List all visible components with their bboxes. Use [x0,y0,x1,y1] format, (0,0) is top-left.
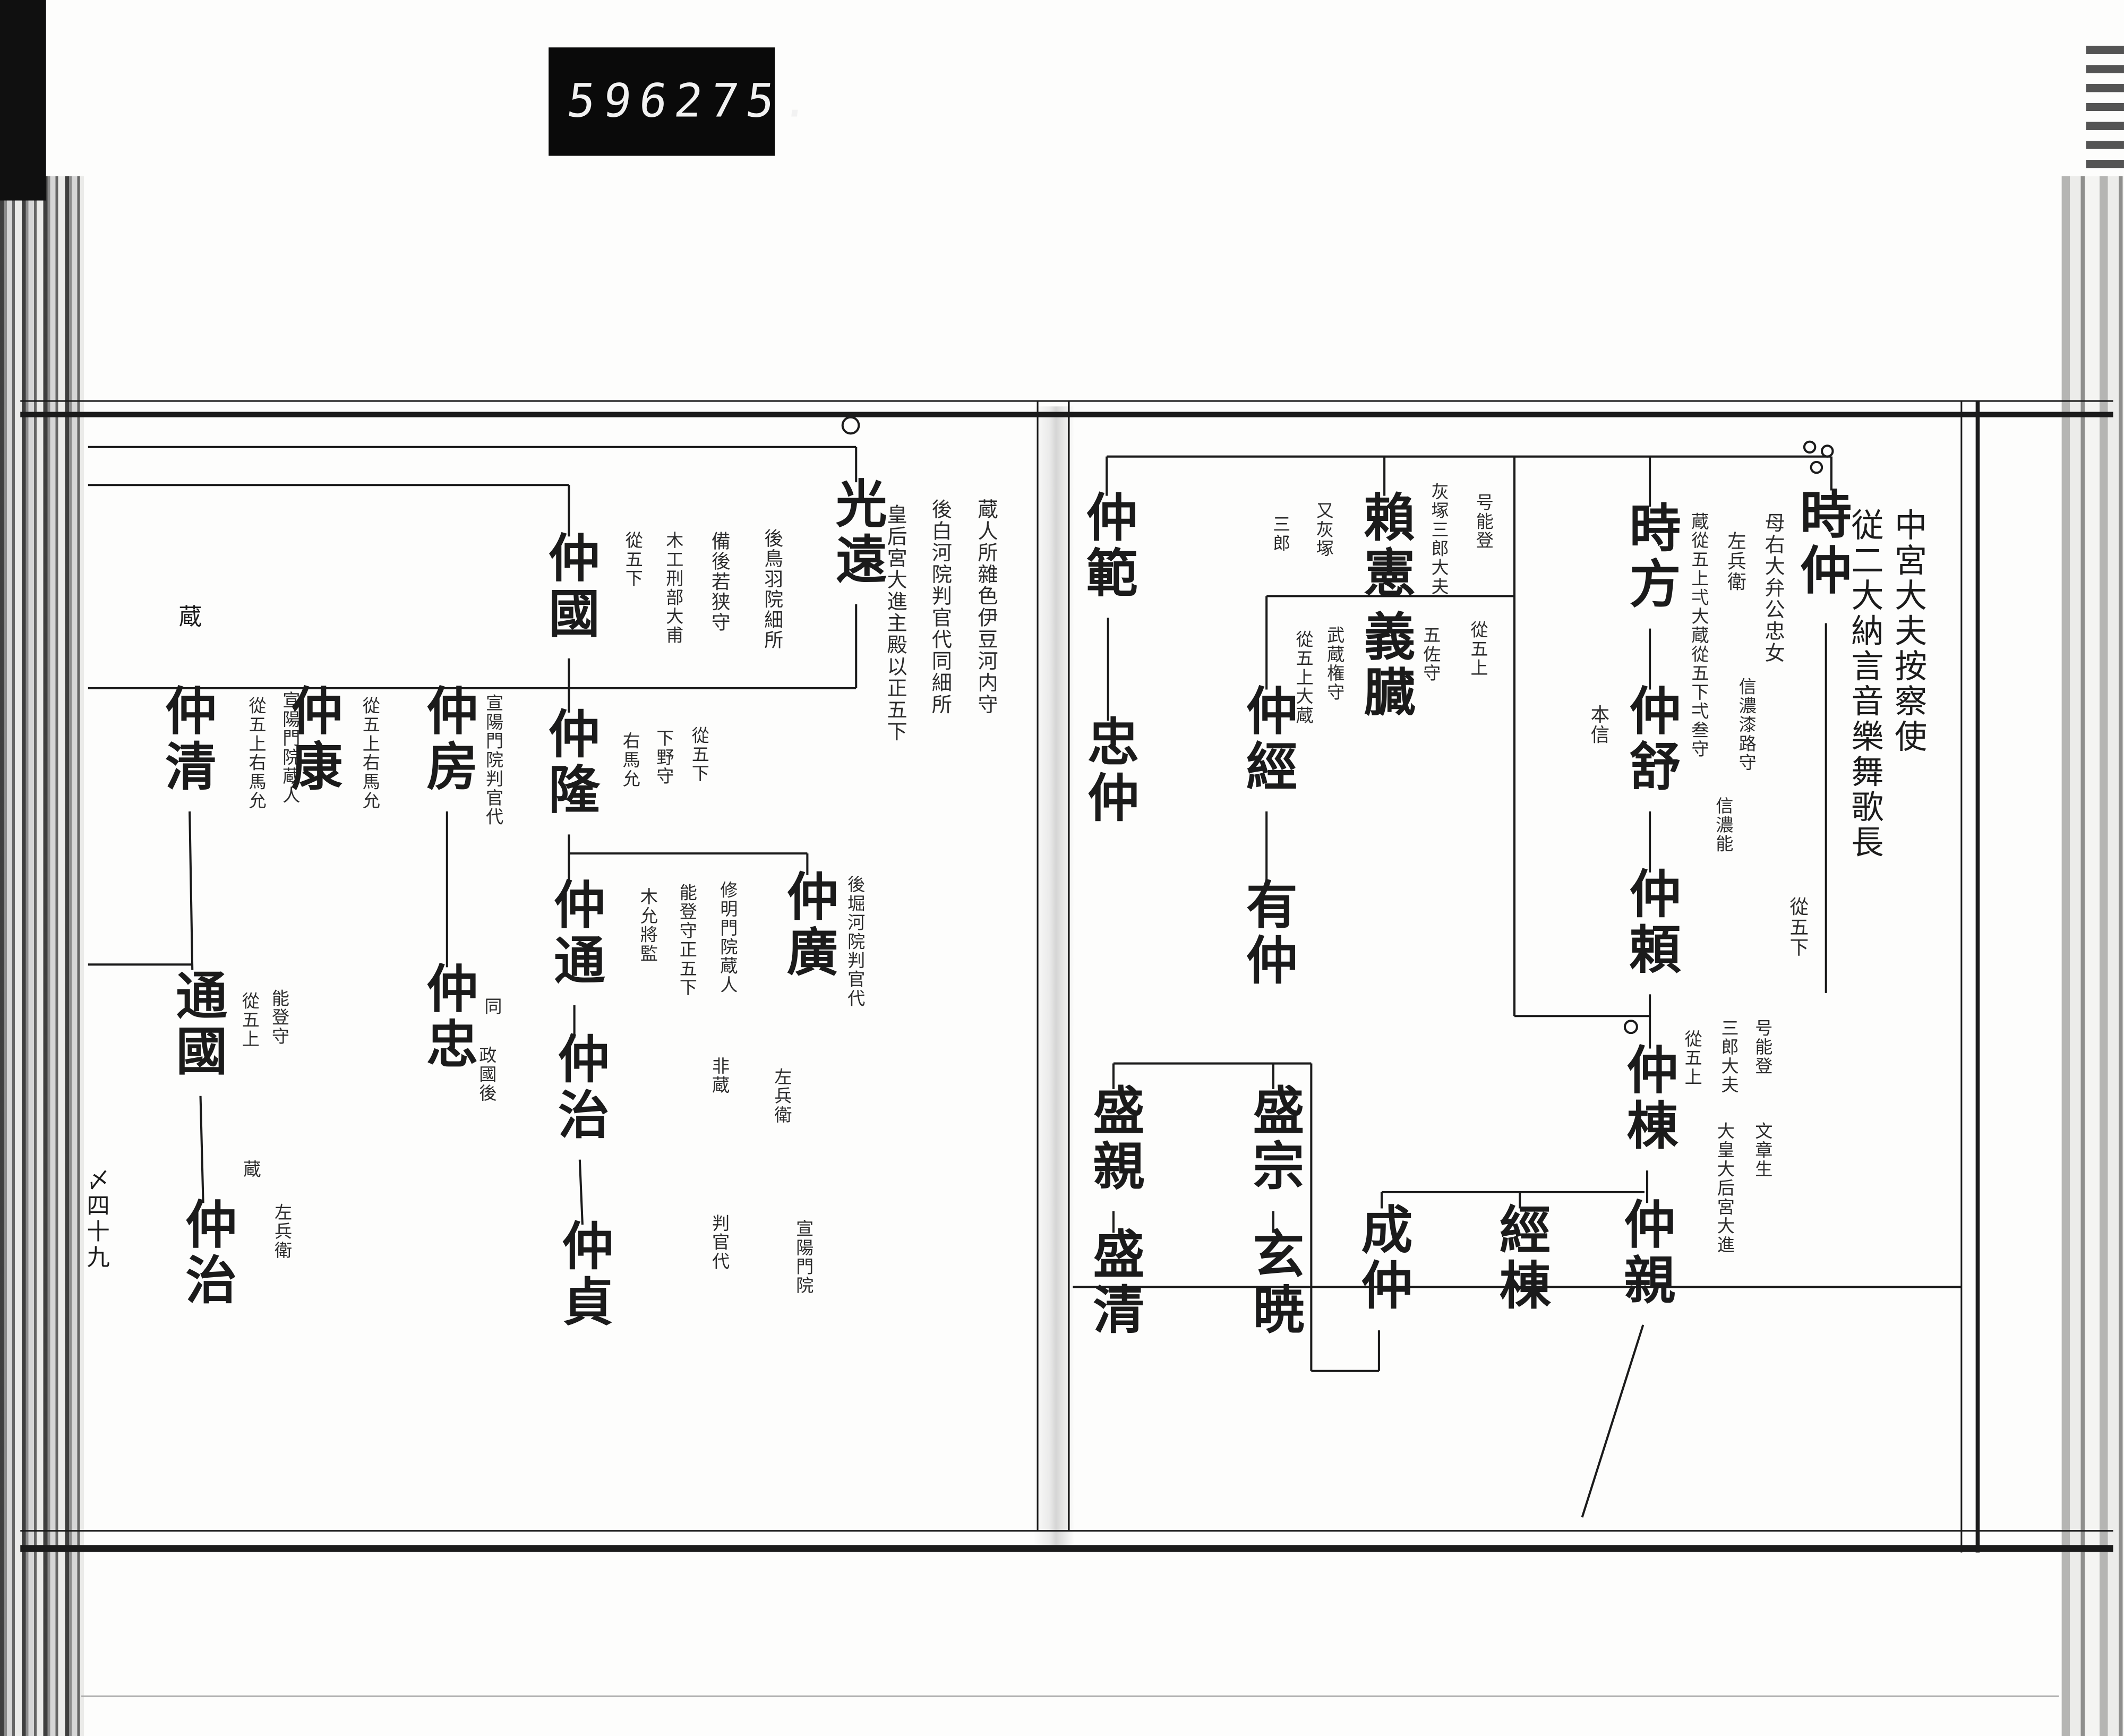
genealogy-name-column: 仲親 [1614,1198,1675,1309]
genealogy-name-column: 盛親 [1083,1084,1144,1195]
genealogy-name-column: 仲舒 [1620,684,1680,795]
genealogy-name-column: 盛清 [1083,1227,1144,1338]
genealogy-annotation-column: 大皇大后宮大進 [1712,1122,1733,1254]
genealogy-annotation-column: 修明門院蔵人 [716,880,736,994]
genealogy-name-column: 仲房 [417,684,477,795]
genealogy-annotation-column: 蔵 [239,1160,260,1179]
genealogy-annotation-column: 蔵從五上弌大蔵從五下弌叁守 [1687,512,1708,758]
genealogy-name-column: 經棟 [1489,1203,1550,1314]
genealogy-annotation-column: 三郎 [1269,515,1289,552]
genealogy-annotation-column: 木工刑部大甫 [662,531,682,645]
genealogy-name-column: 仲國 [538,531,599,642]
genealogy-name-column: 仲經 [1236,684,1297,795]
genealogy-name-column: 玄暁 [1243,1227,1304,1338]
genealogy-name-column: 時方 [1620,501,1680,612]
genealogy-name-column: 成仲 [1351,1203,1412,1314]
genealogy-annotation-column: 蔵人所雜色伊豆河内守 [974,499,998,715]
genealogy-annotation-column: 本信 [1587,705,1609,746]
genealogy-name-column: 賴憲 [1354,490,1415,601]
genealogy-annotation-column: 皇后宮大進主殿以正五下 [884,504,907,742]
genealogy-annotation-column: 左兵衛 [770,1067,791,1124]
genealogy-annotation-column: 信濃能 [1711,797,1732,853]
connector-line [580,1160,583,1225]
genealogy-name-column: 仲治 [548,1032,609,1143]
genealogy-name-column: 仲棟 [1617,1043,1677,1154]
genealogy-annotation-column: 左兵衛 [270,1203,291,1260]
genealogy-label-column: 蔵 [173,604,200,630]
genealogy-annotation-column: 信濃漆路守 [1734,678,1755,773]
genealogy-margin-column: 〆四十九 [81,1168,108,1271]
genealogy-annotation-column: 後白河院判官代同細所 [928,499,952,715]
genealogy-annotation-column: 判官代 [707,1214,728,1271]
genealogy-annotation-column: 左兵衛 [1724,531,1746,592]
connector-line [1582,1325,1643,1517]
genealogy-name-column: 仲通 [544,878,604,989]
genealogy-annotation-column: 從五上右馬允 [358,696,379,810]
book-spread: 596 275. 中宮大夫按察使従二大納言音樂舞歌長時仲時方仲舒仲頼仲棟仲親賴憲… [0,0,2124,1736]
genealogy-annotation-column: 武蔵権守 [1323,626,1343,702]
genealogy-name-column: 光遠 [826,477,886,588]
genealogy-annotation-column: 從五上 [237,991,258,1048]
genealogy-annotation-column: 能登守 [267,989,288,1046]
genealogy-name-column: 有仲 [1236,878,1297,989]
genealogy-annotation-column: 号能登 [1471,493,1492,550]
circle-marker [843,417,859,434]
genealogy-name-column: 通國 [166,969,227,1080]
connector-line [190,811,192,970]
genealogy-name-column: 仲隆 [538,707,599,818]
genealogy-annotation-column: 從五上 [1680,1030,1701,1087]
genealogy-name-column: 仲範 [1076,490,1137,601]
genealogy-annotation-column: 宣陽門院蔵人 [278,691,299,805]
genealogy-annotation-column: 後鳥羽院細所 [761,528,783,651]
genealogy-annotation-column: 後堀河院判官代 [843,875,864,1008]
genealogy-annotation-column: 五佐守 [1419,626,1440,683]
genealogy-annotation-column: 下野守 [652,729,673,785]
genealogy-annotation-column: 從五上 [1466,620,1487,677]
genealogy-annotation-column: 宣陽門院判官代 [481,694,502,826]
genealogy-annotation-column: 從五上大蔵 [1291,630,1312,725]
genealogy-name-column: 時仲 [1790,488,1851,598]
connector-line [201,1096,203,1203]
genealogy-annotation-column: 文章生 [1751,1122,1771,1178]
genealogy-annotation-column: 從五下 [687,726,708,783]
genealogy-annotation-column: 木允將監 [636,887,656,963]
genealogy-annotation-column: 灰塚三郎大夫 [1427,482,1448,596]
genealogy-name-column: 仲清 [155,684,216,795]
genealogy-annotation-column: 政國後 [475,1046,495,1102]
genealogy-annotation-column: 又灰塚 [1312,501,1332,558]
genealogy-name-column: 仲頼 [1620,867,1680,978]
genealogy-name-column: 仲治 [176,1198,236,1309]
circle-marker [1811,462,1822,473]
circle-marker [1804,442,1815,452]
genealogy-annotation-column: 備後若狭守 [708,531,731,632]
genealogy-annotation-column: 從五上右馬允 [244,696,265,810]
genealogy-name-column: 仲廣 [777,870,837,981]
genealogy-name-column: 義臓 [1354,610,1415,721]
genealogy-name-column: 仲貞 [552,1219,613,1330]
genealogy-annotation-column: 三郎大夫 [1717,1019,1737,1094]
genealogy-connector-layer [0,0,2124,1736]
genealogy-annotation-column: 宣陽門院 [792,1219,812,1295]
genealogy-annotation-column: 非蔵 [707,1057,728,1094]
genealogy-name-column: 仲忠 [417,962,477,1073]
genealogy-annotation-column: 母右大弁公忠女 [1761,512,1785,664]
genealogy-annotation-column: 号能登 [1751,1019,1771,1075]
genealogy-title-column: 中宮大夫按察使 [1888,508,1926,755]
genealogy-name-column: 盛宗 [1243,1084,1304,1195]
genealogy-annotation-column: 同 [480,997,501,1016]
genealogy-name-column: 忠仲 [1078,715,1138,826]
genealogy-annotation-column: 從五下 [621,531,641,588]
genealogy-annotation-column: 能登守正五下 [675,883,696,997]
scanned-genealogy-spread: 596 275. 中宮大夫按察使従二大納言音樂舞歌長時仲時方仲舒仲頼仲棟仲親賴憲… [0,0,2124,1736]
genealogy-annotation-column: 從五下 [1786,897,1809,958]
circle-marker [1625,1021,1637,1033]
circle-marker [1822,446,1832,456]
genealogy-annotation-column: 右馬允 [618,732,639,789]
